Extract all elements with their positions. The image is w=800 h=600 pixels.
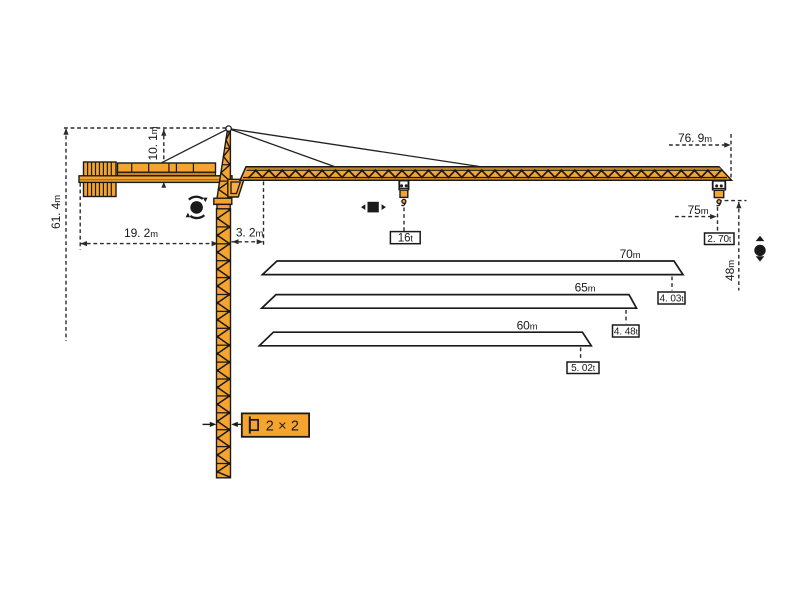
svg-text:48m: 48m [723, 260, 737, 281]
svg-text:76. 9m: 76. 9m [678, 131, 712, 145]
svg-text:2×2: 2×2 [266, 419, 304, 435]
svg-text:5. 02t: 5. 02t [571, 363, 596, 374]
svg-text:65m: 65m [575, 281, 596, 295]
svg-text:3. 2m: 3. 2m [236, 226, 264, 240]
svg-text:70m: 70m [620, 247, 641, 261]
svg-text:75m: 75m [688, 203, 709, 217]
svg-text:61. 4m: 61. 4m [49, 195, 63, 229]
svg-text:2. 70t: 2. 70t [707, 234, 732, 245]
svg-text:4. 03t: 4. 03t [660, 293, 685, 304]
svg-text:19. 2m: 19. 2m [124, 226, 158, 240]
svg-text:60m: 60m [517, 319, 538, 333]
svg-text:16t: 16t [398, 232, 414, 244]
svg-text:10. 1m: 10. 1m [146, 126, 160, 160]
svg-text:4. 48t: 4. 48t [614, 326, 639, 337]
